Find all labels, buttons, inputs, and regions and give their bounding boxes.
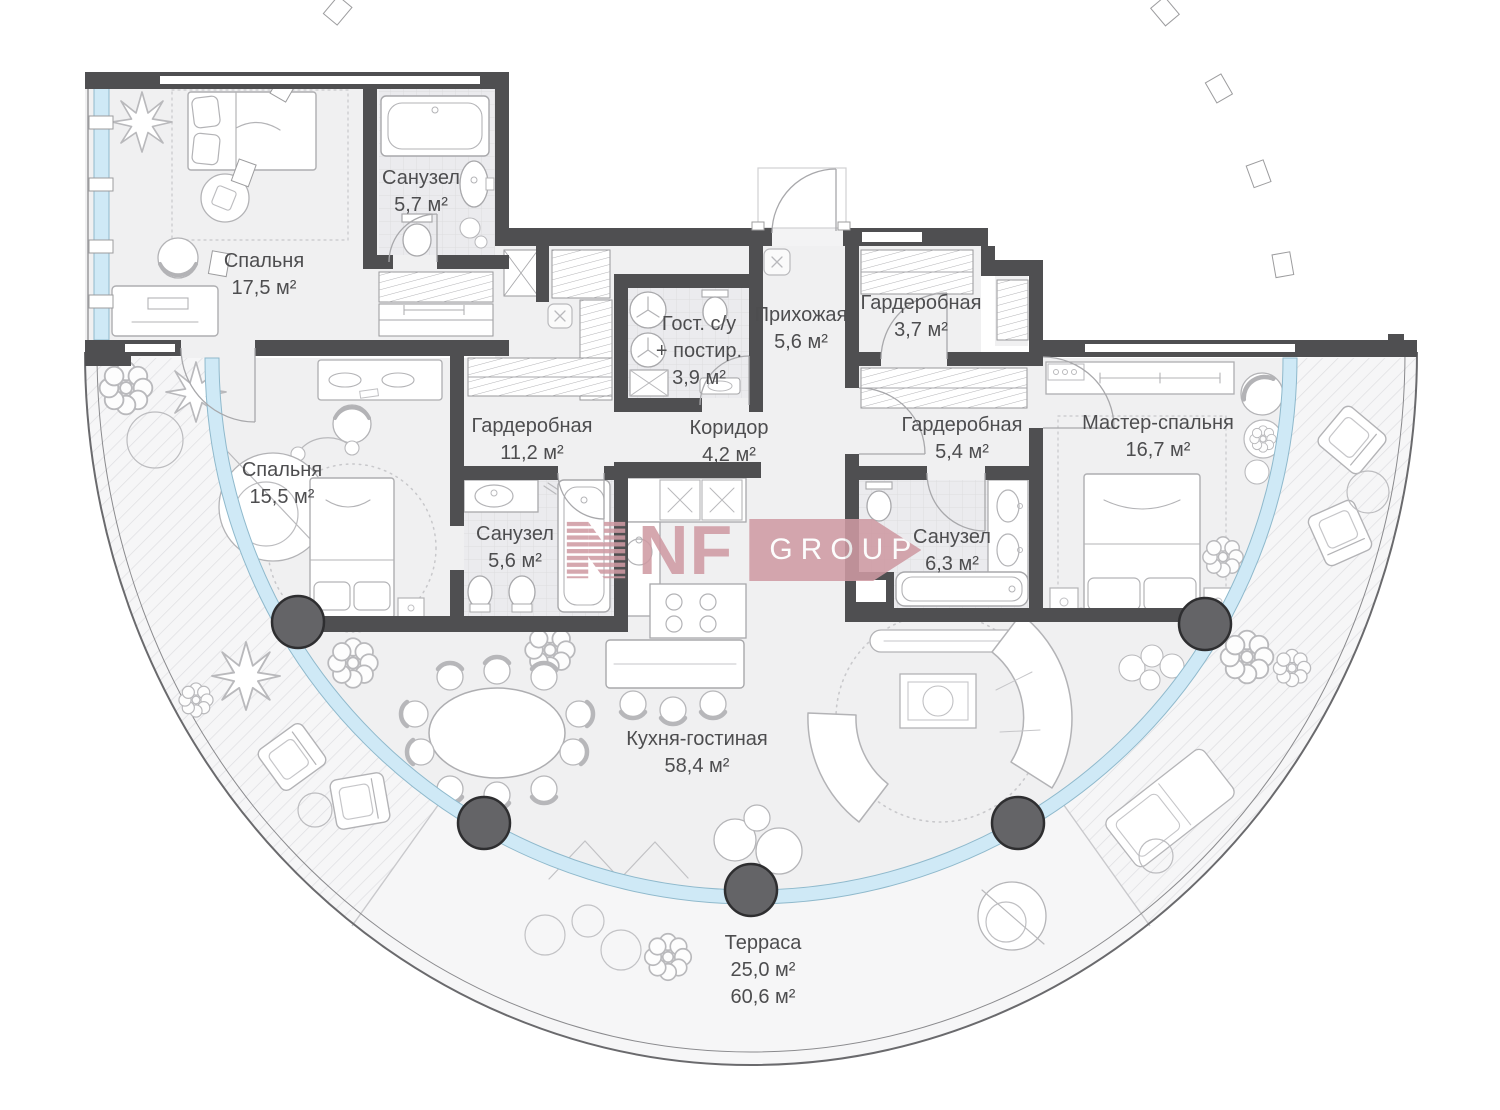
room-name: Спальня [164,248,364,275]
room-area-2: 60,6 м² [663,984,863,1011]
room-area: 3,7 м² [831,317,1011,344]
room-label-kitchen-living: Кухня-гостиная 58,4 м² [587,726,807,780]
room-area: 15,5 м² [192,484,372,511]
room-label-master-bedroom: Мастер-спальня 16,7 м² [1048,410,1268,464]
room-area: 4,2 м² [639,442,819,469]
room-area: 25,0 м² [663,957,863,984]
room-area: 17,5 м² [164,275,364,302]
room-label-wardrobe-1: Гардеробная 3,7 м² [831,290,1011,344]
nf-group-logo: NF GROUP [566,514,921,586]
room-name: Мастер-спальня [1048,410,1268,437]
room-label-bathroom-1: Санузел 5,7 м² [346,165,496,219]
nf-logo-mark-icon [566,514,628,586]
room-label-bedroom-1: Спальня 17,5 м² [164,248,364,302]
room-name: Гардеробная [872,412,1052,439]
room-label-corridor: Коридор 4,2 м² [639,415,819,469]
room-name: Гардеробная [831,290,1011,317]
room-name: Кухня-гостиная [587,726,807,753]
room-name: Коридор [639,415,819,442]
room-area: 3,9 м² [619,365,779,392]
room-name: Терраса [663,930,863,957]
room-label-wardrobe-2: Гардеробная 11,2 м² [432,413,632,467]
room-area: 5,4 м² [872,439,1052,466]
room-area: 11,2 м² [432,440,632,467]
room-area: 58,4 м² [587,753,807,780]
nf-logo-text: NF [638,515,733,585]
room-name: Санузел [346,165,496,192]
room-area: 5,7 м² [346,192,496,219]
room-name: Спальня [192,457,372,484]
room-label-wardrobe-3: Гардеробная 5,4 м² [872,412,1052,466]
nf-logo-group-badge: GROUP [749,519,921,581]
room-name: Гардеробная [432,413,632,440]
floor-plan: Спальня 17,5 м² Санузел 5,7 м² Гост. с/у… [0,0,1500,1110]
room-label-bedroom-2: Спальня 15,5 м² [192,457,372,511]
nf-logo-group-text: GROUP [769,533,919,567]
room-area: 16,7 м² [1048,437,1268,464]
room-label-terrace: Терраса 25,0 м² 60,6 м² [663,930,863,1011]
